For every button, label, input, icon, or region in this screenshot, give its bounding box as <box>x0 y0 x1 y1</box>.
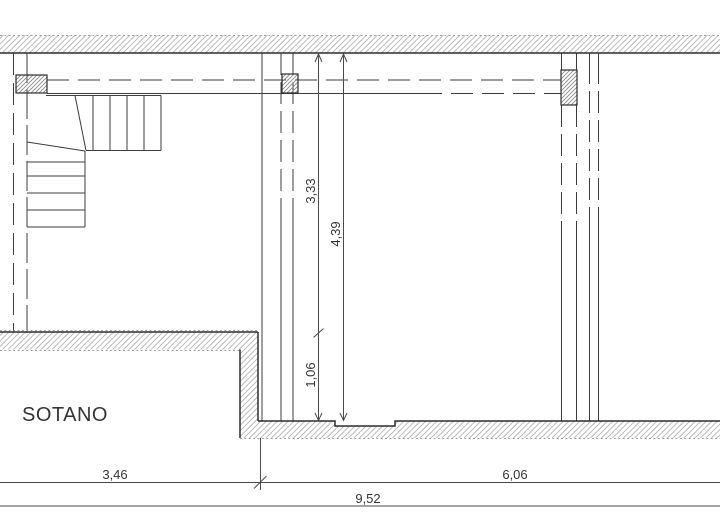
floor-plan-drawing: 3,33 4,39 1,06 3,46 6,06 9,52 SOTANO <box>0 0 720 532</box>
overhead-beam <box>47 80 561 94</box>
basement-walls <box>0 331 720 439</box>
dim-label-right-width: 6,06 <box>502 467 527 482</box>
pillar-right <box>561 70 577 105</box>
top-exterior-wall <box>0 35 720 53</box>
stair-winder-diagonal-2 <box>27 142 85 151</box>
left-exterior-wall <box>14 53 28 332</box>
pillars <box>16 70 577 105</box>
vertical-dimensions: 3,33 4,39 1,06 <box>303 54 347 421</box>
stair-winder-diagonal-1 <box>75 96 86 151</box>
room-label-sotano: SOTANO <box>22 404 108 426</box>
basement-wall-hatch <box>0 332 720 438</box>
horizontal-dimensions: 3,46 6,06 9,52 <box>0 438 720 506</box>
pillar-center <box>282 74 298 93</box>
pillar-left <box>16 75 47 93</box>
dim-label-total-height: 4,39 <box>328 221 343 246</box>
dim-label-total-width: 9,52 <box>355 491 380 506</box>
dim-label-upper-height: 3,33 <box>303 178 318 203</box>
top-wall-hatch <box>0 35 720 53</box>
floor-plan-canvas: 3,33 4,39 1,06 3,46 6,06 9,52 SOTANO <box>0 0 720 532</box>
dim-label-lower-height: 1,06 <box>303 362 318 387</box>
dim-label-left-width: 3,46 <box>102 467 127 482</box>
staircase <box>27 96 161 228</box>
